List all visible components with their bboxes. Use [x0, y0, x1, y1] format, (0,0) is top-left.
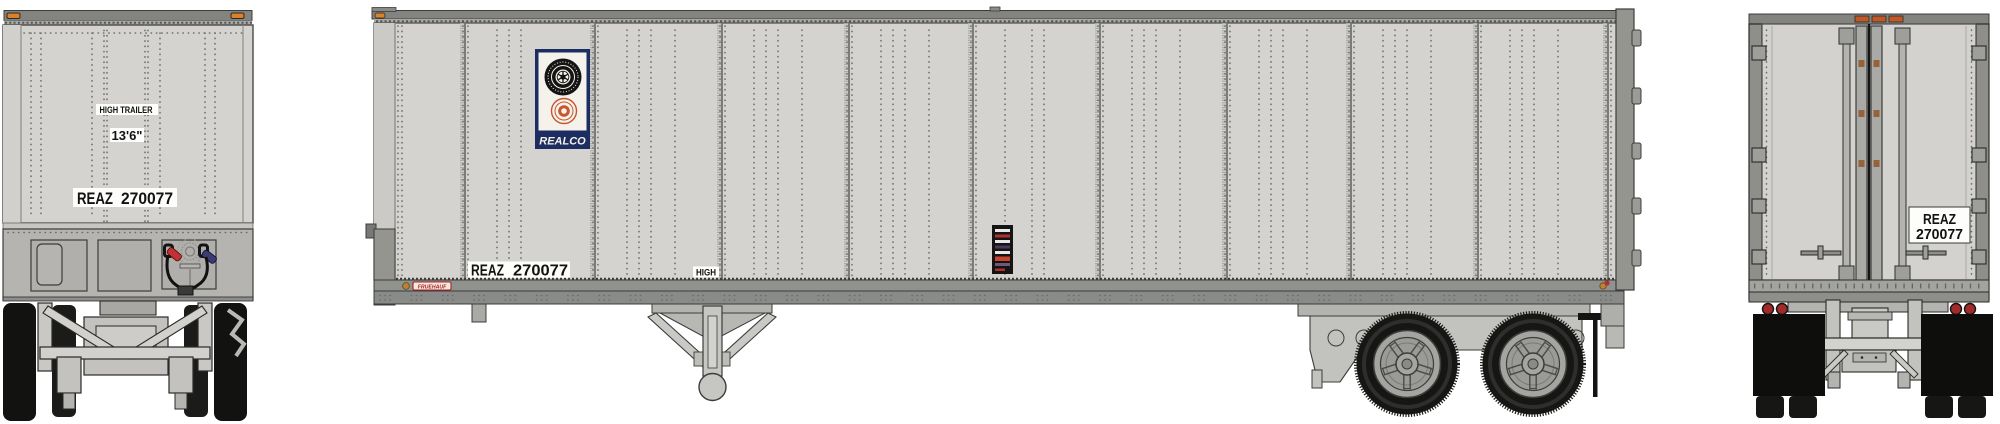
svg-text:REAZ: REAZ [77, 189, 113, 208]
svg-text:13'6": 13'6" [112, 128, 143, 143]
svg-text:FRUEHAUF: FRUEHAUF [418, 284, 447, 290]
svg-text:270077: 270077 [513, 263, 568, 280]
svg-text:HIGH: HIGH [696, 268, 716, 279]
svg-text:REALCO: REALCO [539, 136, 586, 148]
svg-text:REAZ: REAZ [471, 263, 504, 280]
svg-text:270077: 270077 [121, 189, 173, 208]
svg-text:270077: 270077 [1916, 226, 1963, 243]
svg-text:HIGH TRAILER: HIGH TRAILER [100, 105, 153, 116]
